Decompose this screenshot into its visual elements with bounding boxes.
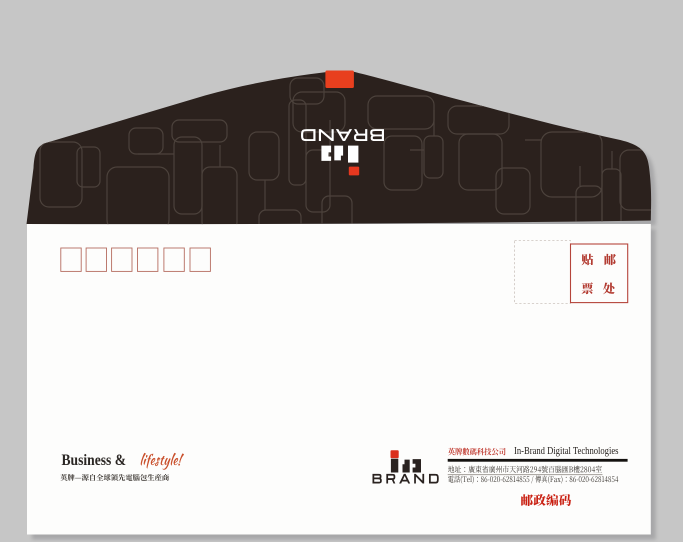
- svg-text:In-Brand Digital Technologies: In-Brand Digital Technologies: [514, 446, 619, 457]
- svg-text:Business &: Business &: [62, 452, 127, 469]
